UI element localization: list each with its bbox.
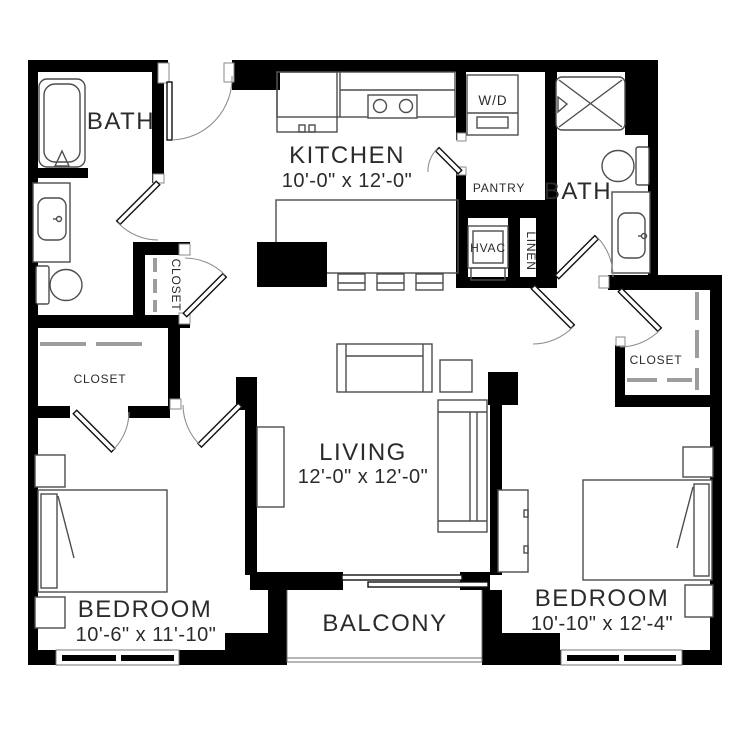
door-pantry-swing bbox=[428, 149, 437, 172]
door-bath-left bbox=[117, 181, 160, 224]
stove bbox=[368, 95, 417, 118]
label-living-dims: 12'-0" x 12'-0" bbox=[298, 466, 429, 488]
loveseat bbox=[438, 400, 487, 532]
bed-right bbox=[583, 480, 712, 580]
door-entry-swing bbox=[172, 76, 232, 140]
window-left-1 bbox=[62, 655, 116, 661]
toilet-left-bowl bbox=[50, 270, 82, 301]
wall-outer-west bbox=[28, 60, 38, 662]
label-living: LIVING bbox=[319, 439, 407, 466]
wall-kitchen-notch bbox=[232, 72, 280, 90]
wall-outer-north bbox=[232, 60, 658, 72]
kitchen-faucet-right bbox=[309, 125, 315, 132]
wall-hvac-linen-divider bbox=[508, 218, 520, 287]
label-linen: LINEN bbox=[524, 231, 538, 270]
label-closet-hall: CLOSET bbox=[169, 259, 183, 312]
dresser bbox=[498, 490, 528, 572]
door-closet-hall-swing bbox=[185, 258, 225, 275]
wall-pantry-west-upper bbox=[456, 72, 466, 140]
wall-bedroom-left-north-b bbox=[128, 406, 170, 418]
label-closet-bedroom-left: CLOSET bbox=[74, 372, 127, 386]
bar-stools bbox=[338, 274, 443, 290]
door-bath-right bbox=[555, 236, 598, 279]
label-bath-right: BATH bbox=[544, 178, 612, 205]
door-closet-right-swing bbox=[620, 330, 660, 347]
jamb-pantry-top bbox=[457, 133, 466, 141]
window-left-2 bbox=[121, 655, 174, 661]
door-bedroom-left bbox=[198, 403, 242, 447]
nightstand bbox=[35, 597, 65, 628]
kitchen-sink-cabinet bbox=[277, 72, 337, 132]
wall-bedroom-left-closet-north bbox=[28, 315, 190, 328]
door-bath-right-swing bbox=[597, 237, 613, 277]
jamb-closet-hall-top bbox=[179, 244, 190, 255]
wall-closet-right-west bbox=[615, 345, 625, 395]
wall-closet-right-north bbox=[608, 275, 722, 290]
side-table bbox=[440, 360, 472, 392]
door-closet-hall bbox=[183, 274, 226, 317]
window-right-2 bbox=[624, 655, 676, 661]
label-laundry: W/D bbox=[478, 93, 507, 108]
wall-bedroom-left-north-a bbox=[28, 406, 70, 418]
label-bedroom-left: BEDROOM bbox=[78, 596, 213, 623]
label-closet-bedroom-right: CLOSET bbox=[630, 353, 683, 367]
label-hvac: HVAC bbox=[470, 241, 506, 255]
door-pantry bbox=[436, 148, 462, 174]
door-entry bbox=[167, 82, 172, 140]
label-bedroom-right: BEDROOM bbox=[535, 585, 670, 612]
door-bedroom-right bbox=[531, 285, 574, 328]
label-pantry: PANTRY bbox=[473, 181, 525, 195]
floorplan-page: BATH KITCHEN 10'-0" x 12'-0" W/D PANTRY … bbox=[0, 0, 750, 750]
door-bedroom-left-swing bbox=[183, 405, 200, 445]
wall-bedroom-left-closet-east bbox=[168, 328, 180, 408]
door-closet-bedroom-left-swing bbox=[113, 412, 129, 450]
sofa bbox=[337, 344, 432, 392]
bar-stool bbox=[377, 274, 404, 290]
door-bedroom-right-swing bbox=[533, 327, 573, 344]
label-kitchen: KITCHEN bbox=[289, 142, 405, 169]
wall-balcony-northwest bbox=[250, 572, 343, 590]
bar-stool bbox=[338, 274, 365, 290]
window-right-1 bbox=[567, 655, 619, 661]
media-console bbox=[257, 427, 284, 507]
wall-pantry-south bbox=[456, 200, 545, 218]
wall-living-west bbox=[245, 410, 257, 575]
sliding-door-rail-2 bbox=[368, 582, 488, 587]
door-closet-right bbox=[618, 288, 661, 331]
nightstand bbox=[35, 455, 65, 487]
nightstand bbox=[685, 585, 713, 617]
jamb-entry-left bbox=[158, 63, 169, 83]
sliding-door-rail-1 bbox=[342, 575, 462, 580]
jamb-closet-right-door bbox=[616, 337, 625, 346]
wall-bedroom-right-west-chunk bbox=[488, 372, 518, 405]
kitchen-island-accent bbox=[257, 242, 327, 287]
label-bath-left: BATH bbox=[87, 108, 155, 135]
nightstand bbox=[683, 447, 713, 477]
label-bedroom-right-dims: 10'-10" x 12'-4" bbox=[531, 613, 673, 635]
toilet-right-bowl bbox=[602, 151, 634, 182]
wall-tub-separator bbox=[28, 168, 88, 178]
wall-bath-left-north bbox=[28, 60, 168, 72]
wall-closet-right-south bbox=[615, 395, 722, 407]
door-bath-left-swing bbox=[118, 223, 158, 240]
jamb-bath-left-door bbox=[153, 174, 164, 183]
jamb-bath-right-door bbox=[599, 276, 609, 288]
label-bedroom-left-dims: 10'-6" x 11'-10" bbox=[76, 624, 217, 646]
wall-linen-east bbox=[536, 218, 557, 287]
toilet-right-tank bbox=[636, 147, 649, 185]
label-balcony: BALCONY bbox=[322, 610, 447, 637]
label-kitchen-dims: 10'-0" x 12'-0" bbox=[282, 170, 413, 192]
living-furniture bbox=[257, 344, 487, 532]
bath-left-fixtures bbox=[33, 79, 85, 304]
door-closet-bedroom-left bbox=[73, 410, 115, 452]
kitchen-faucet-left bbox=[299, 125, 305, 132]
toilet-left-tank bbox=[36, 266, 49, 304]
jamb-bedroom-left-door bbox=[170, 399, 181, 409]
bar-stool bbox=[416, 274, 443, 290]
floorplan-drawing: BATH KITCHEN 10'-0" x 12'-0" W/D PANTRY … bbox=[0, 0, 750, 750]
bathtub bbox=[39, 79, 85, 167]
kitchen-counter bbox=[277, 72, 455, 117]
